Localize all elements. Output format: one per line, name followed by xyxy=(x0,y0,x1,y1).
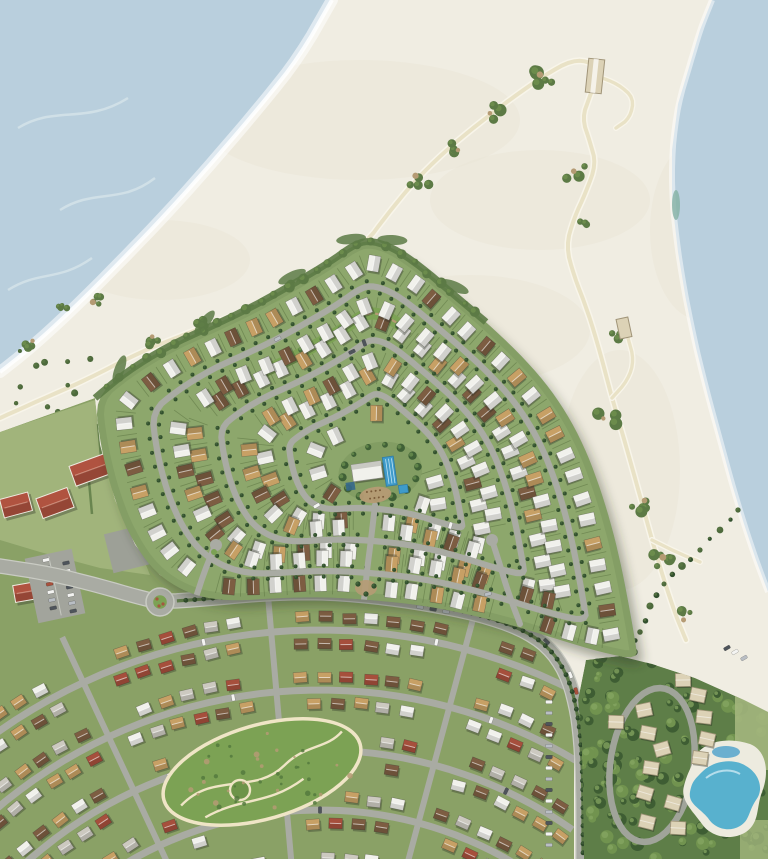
site-plan-svg xyxy=(0,0,768,859)
master-plan-map: Coastal residential master plan — aerial… xyxy=(0,0,768,859)
